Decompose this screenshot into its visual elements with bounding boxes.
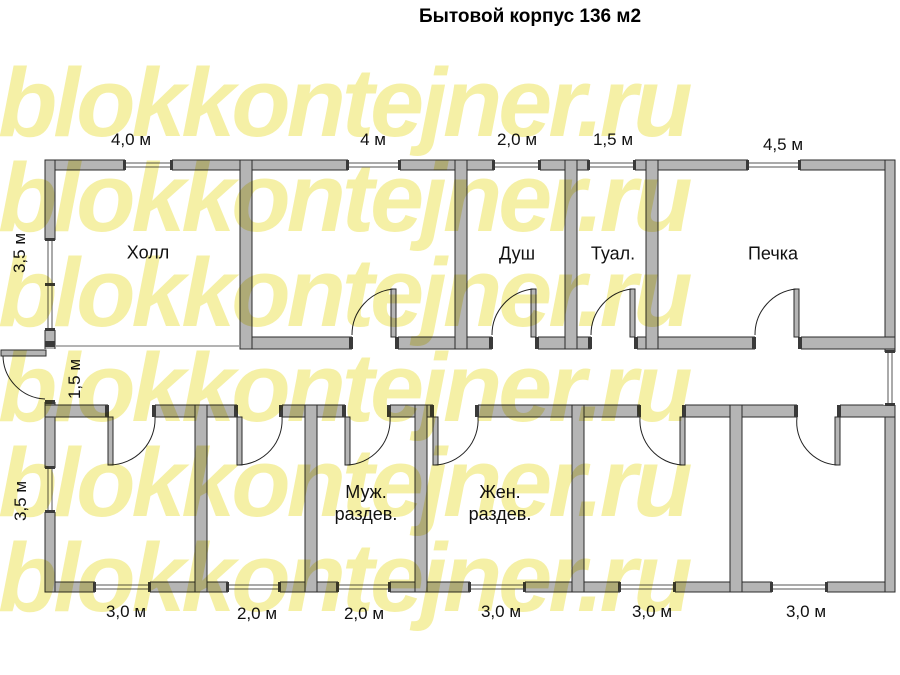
- floor-plan-drawing: [0, 0, 900, 675]
- room-label-mens-line1: Муж.: [335, 481, 398, 503]
- dim-left-top: 3,5 м: [10, 233, 30, 273]
- dim-top-2: 4 м: [360, 130, 386, 150]
- wall-hall-room2: [240, 160, 252, 349]
- dim-top-3: 2,0 м: [497, 130, 537, 150]
- wall-shower-toilet: [565, 160, 577, 349]
- room-label-toilet: Туал.: [591, 244, 635, 265]
- room-label-womens-line2: раздев.: [469, 503, 532, 525]
- dim-top-5: 4,5 м: [763, 135, 803, 155]
- dim-bottom-1: 3,0 м: [106, 602, 146, 622]
- window-caps: [45, 160, 895, 592]
- room-label-womens-changing: Жен. раздев.: [469, 481, 532, 525]
- windows: [48, 163, 892, 589]
- room-label-mens-changing: Муж. раздев.: [335, 481, 398, 525]
- dim-corridor: 1,5 м: [65, 359, 85, 399]
- dim-bottom-6: 3,0 м: [786, 602, 826, 622]
- dim-left-bottom: 3,5 м: [11, 481, 31, 521]
- wall-b2-b3: [305, 405, 317, 592]
- wall-b3-b4: [415, 405, 427, 592]
- wall-b4-b5: [572, 405, 584, 592]
- room-label-stove: Печка: [748, 244, 798, 265]
- room-label-womens-line1: Жен.: [469, 481, 532, 503]
- room-label-mens-line2: раздев.: [335, 503, 398, 525]
- room-label-shower: Душ: [499, 244, 535, 265]
- room-label-hall: Холл: [127, 243, 169, 264]
- page-title: Бытовой корпус 136 м2: [355, 6, 705, 28]
- wall-openings: [44, 159, 897, 594]
- walls: [45, 160, 895, 592]
- dim-top-1: 4,0 м: [111, 130, 151, 150]
- dim-bottom-4: 3,0 м: [481, 602, 521, 622]
- wall-room2-shower: [455, 160, 467, 349]
- dim-top-4: 1,5 м: [593, 130, 633, 150]
- dim-bottom-3: 2,0 м: [344, 604, 384, 624]
- dim-bottom-5: 3,0 м: [632, 602, 672, 622]
- wall-b1-b2: [195, 405, 207, 592]
- wall-b5-b6: [730, 405, 742, 592]
- wall-toilet-stove: [646, 160, 658, 349]
- floor-plan-page: Бытовой корпус 136 м2 4,0 м 4 м 2,0 м 1,…: [0, 0, 900, 675]
- dim-bottom-2: 2,0 м: [237, 604, 277, 624]
